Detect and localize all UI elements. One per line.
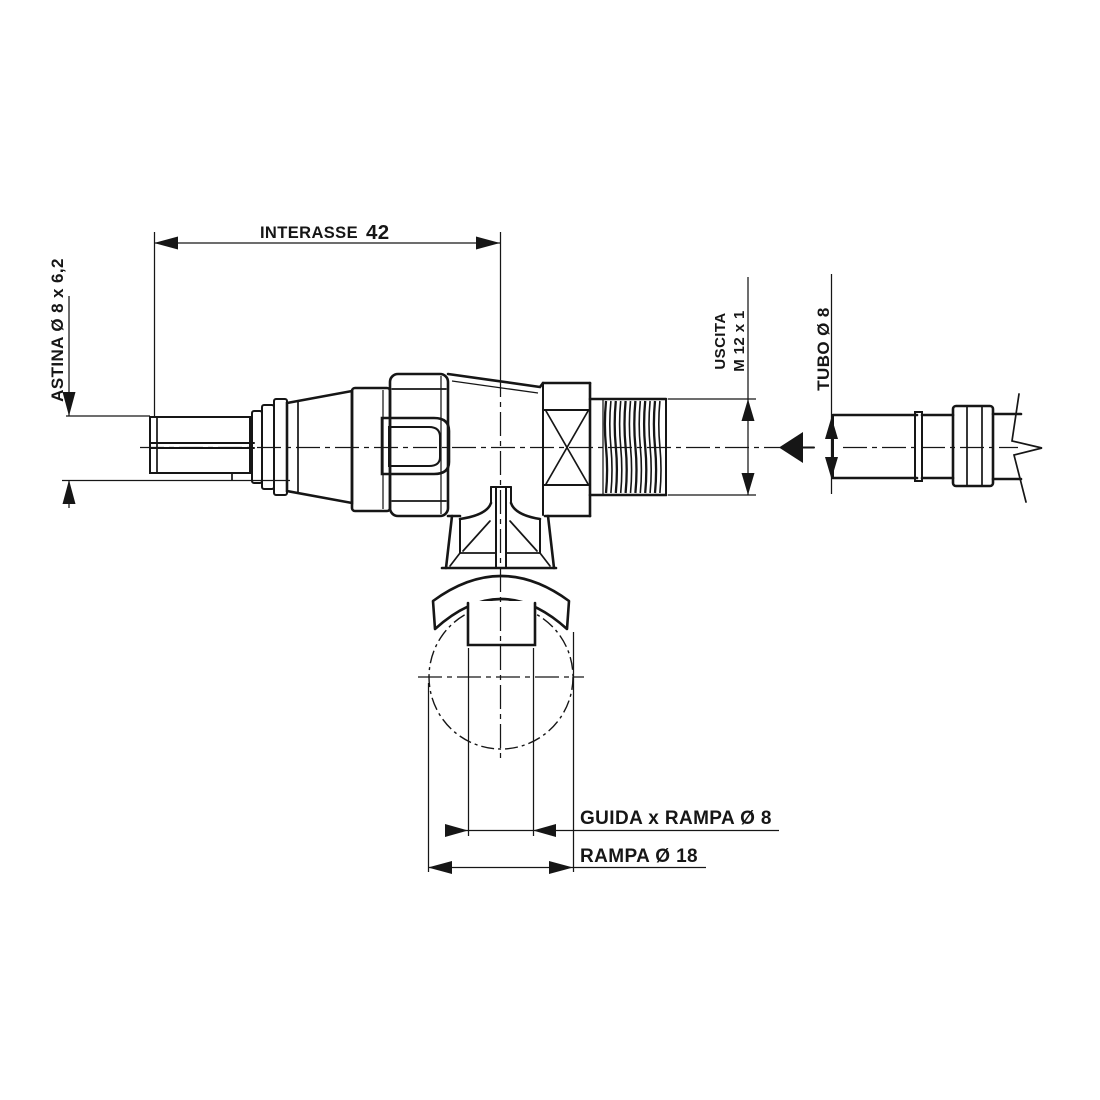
dim-uscita-label: USCITA [712, 312, 729, 369]
hex-nut-section [543, 383, 590, 516]
centerlines [140, 232, 790, 762]
tube-detail: TUBO Ø 8 [814, 274, 1042, 502]
dim-uscita: USCITA M 12 x 1 [668, 277, 756, 495]
retaining-clip [382, 418, 449, 474]
dim-tubo-label: TUBO Ø 8 [814, 307, 833, 391]
lower-bell [442, 487, 556, 568]
dim-astina: ASTINA Ø 8 x 6,2 [48, 258, 290, 508]
valve-side-view [150, 374, 666, 645]
guide-tab [468, 601, 535, 645]
arrowhead-right [549, 861, 573, 874]
arrowhead-left [428, 861, 452, 874]
astina-rod [150, 417, 254, 480]
arrowhead-right [445, 824, 468, 837]
arrowhead-up [63, 480, 76, 504]
dim-rampa: RAMPA Ø 18 [428, 632, 706, 874]
arrowhead-right [476, 237, 500, 250]
dim-guida-label: GUIDA x RAMPA Ø 8 [580, 808, 772, 829]
arrowhead-down [825, 457, 838, 479]
arrowhead-up [742, 399, 755, 421]
tube-drawing [833, 394, 1042, 502]
arrowhead-left [779, 432, 803, 463]
bonnet-ring [352, 388, 390, 511]
dim-guida: GUIDA x RAMPA Ø 8 [445, 648, 779, 837]
arrowhead-up [825, 417, 838, 439]
dim-uscita-thread-label: M 12 x 1 [731, 310, 748, 372]
arrowhead-left [154, 237, 178, 250]
dim-astina-label: ASTINA Ø 8 x 6,2 [48, 258, 67, 402]
arrowhead-left [533, 824, 556, 837]
dim-interasse-value: 42 [366, 221, 390, 244]
assembly-arrow [779, 432, 814, 463]
dim-interasse-label: INTERASSE [260, 224, 358, 242]
technical-drawing-page: INTERASSE 42 ASTINA Ø 8 x 6,2 USCITA M 1… [0, 0, 1100, 1100]
dim-rampa-label: RAMPA Ø 18 [580, 846, 698, 867]
valve-technical-drawing: INTERASSE 42 ASTINA Ø 8 x 6,2 USCITA M 1… [0, 0, 1100, 1100]
arrowhead-down [742, 473, 755, 495]
